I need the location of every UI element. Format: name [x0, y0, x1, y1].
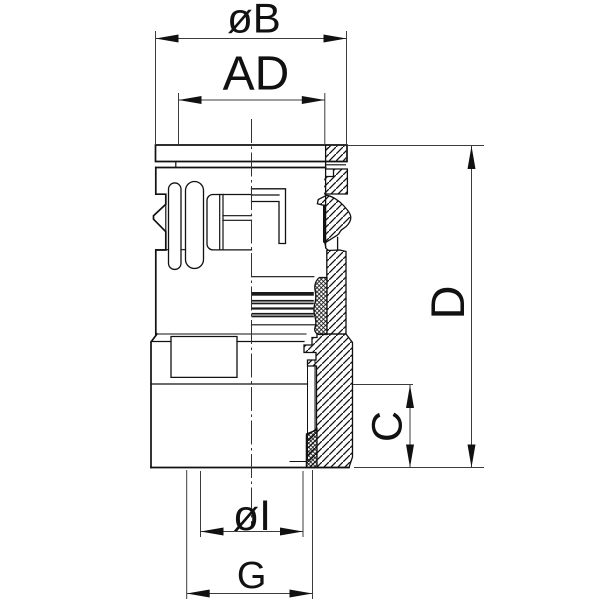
- svg-text:D: D: [421, 286, 474, 320]
- svg-text:C: C: [363, 411, 411, 442]
- svg-text:øI: øI: [233, 492, 271, 540]
- svg-text:AD: AD: [223, 48, 290, 101]
- svg-text:øB: øB: [227, 0, 281, 42]
- svg-text:G: G: [237, 555, 267, 597]
